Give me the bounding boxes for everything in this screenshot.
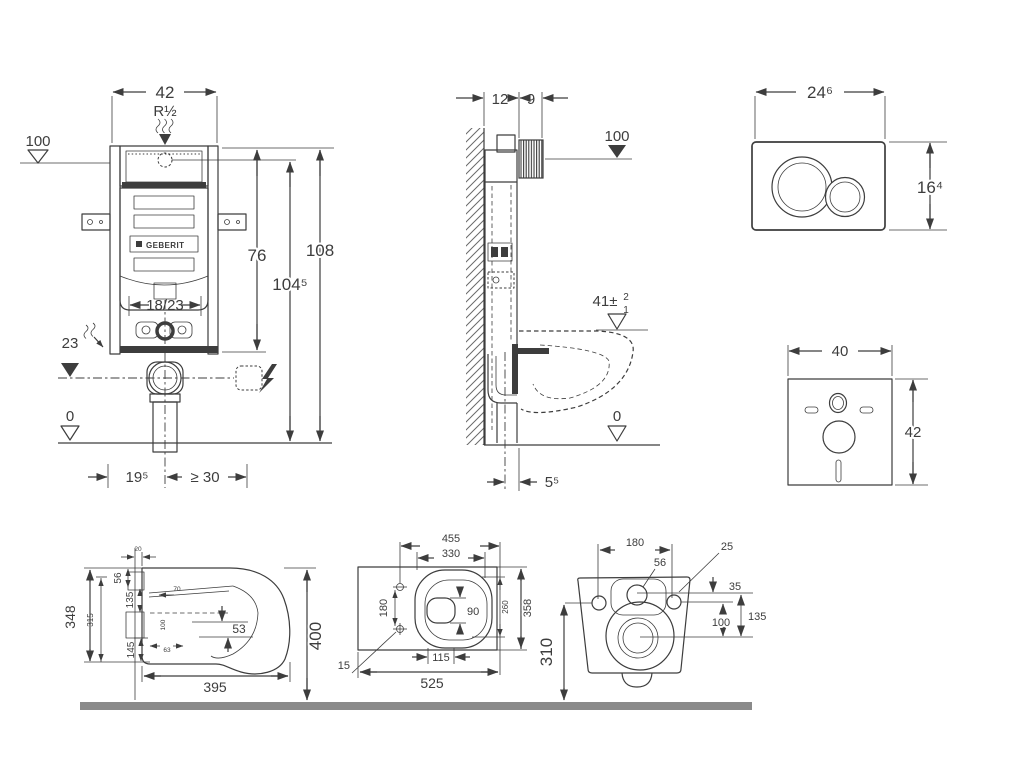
dim-100-rear-label: 100 — [712, 617, 730, 629]
dim-42-label: 42 — [905, 424, 922, 441]
dim-180-rear-label: 180 — [626, 537, 644, 549]
dim-plate-width: 24⁶ — [755, 83, 885, 139]
dim-310-label: 310 — [537, 638, 556, 666]
dim-40-label: 40 — [832, 343, 849, 360]
dim-180-top: 180 — [378, 590, 395, 626]
dim-53: 53 — [192, 606, 253, 652]
dim-15-label: 15 — [338, 660, 350, 672]
pan-height-marker: 41± 2 1 — [593, 292, 648, 330]
water-supply-icon — [156, 119, 173, 145]
dim-100-side-label: 100 — [160, 619, 167, 630]
level-0-side-label: 0 — [613, 408, 621, 425]
dim-plate-height: 16⁴ — [889, 142, 947, 230]
dim-108-label: 108 — [306, 241, 334, 260]
dim-56-rear-label: 56 — [654, 557, 666, 569]
dim-455: 455 — [401, 533, 499, 546]
dim-330: 330 — [418, 548, 484, 560]
dim-outlet-offset: 5⁵ — [487, 448, 559, 491]
dim-width-label: 42 — [156, 83, 175, 102]
dim-25-leader: 25 — [679, 541, 733, 592]
dim-395: 395 — [142, 662, 290, 695]
wall-hatch — [466, 128, 484, 445]
dim-100-rear: 100 — [712, 604, 730, 636]
level-23-label: 23 — [62, 335, 79, 352]
dim-135-rear-label: 135 — [748, 611, 766, 623]
pan-rear-shapes — [578, 577, 690, 687]
zero-level-marker-side: 0 — [484, 408, 660, 445]
level-100-label: 100 — [25, 133, 50, 150]
dim-135-side-label: 135 — [125, 591, 136, 608]
dim-mat-width: 40 — [788, 343, 892, 376]
dim-35-label: 35 — [729, 581, 741, 593]
dim-525-label: 525 — [420, 675, 444, 691]
dim-400-label: 400 — [306, 622, 325, 650]
flush-bend — [147, 300, 183, 488]
dim-358-label: 358 — [522, 599, 534, 617]
dim-thread-label: R½ — [153, 103, 177, 120]
dim-108: 108 — [306, 150, 334, 441]
view-wc-top: 455 330 180 90 — [338, 533, 534, 691]
view-frame-side: 12 9 100 — [456, 91, 660, 492]
dim-180-top-label: 180 — [378, 599, 390, 617]
supply-level-marker: 100 — [20, 133, 110, 163]
dim-395-label: 395 — [203, 679, 227, 695]
dim-55-label: 5⁵ — [545, 474, 560, 491]
dim-63-label: 63 — [163, 647, 171, 654]
level-0-label: 0 — [66, 408, 74, 425]
water-flow-icon — [84, 323, 103, 347]
view-frame-front: 42 R½ 100 GEBERIT — [20, 83, 334, 488]
dim-70-label: 70 — [173, 586, 181, 593]
view-wc-rear: 180 25 56 35 — [537, 537, 766, 700]
view-flush-plate: 24⁶ 16⁴ — [752, 83, 947, 230]
dim-90: 90 — [450, 588, 479, 633]
dim-330-label: 330 — [442, 548, 460, 560]
dim-mat-height: 42 — [895, 379, 928, 485]
dim-135-side: 135 — [125, 589, 140, 612]
dim-135-rear: 135 — [741, 595, 766, 636]
dim-104: 104⁵ — [272, 162, 307, 441]
dim-bottom-offsets: 19⁵ ≥ 30 — [88, 464, 247, 488]
dim-145: 145 — [126, 638, 148, 661]
floor-bar — [80, 702, 752, 710]
technical-drawing: 42 R½ 100 GEBERIT — [0, 0, 1024, 758]
dim-56-side: 56 — [113, 569, 128, 587]
dim-9-label: 9 — [527, 91, 535, 108]
dim-35: 35 — [713, 577, 741, 593]
dim-400: 400 — [306, 570, 325, 700]
wc-pan-dashed-outline — [517, 331, 633, 413]
dim-145-label: 145 — [126, 641, 137, 658]
dim-104-label: 104⁵ — [272, 275, 307, 294]
view-wc-side: 20 70 100 63 56 — [62, 546, 325, 700]
dim-20: 20 — [121, 546, 156, 566]
dim-348-label: 348 — [62, 605, 78, 629]
dim-56-side-label: 56 — [113, 572, 124, 584]
level-100-side-label: 100 — [604, 128, 629, 145]
mat-cutouts — [805, 394, 873, 483]
installation-drawing-page: 42 R½ 100 GEBERIT — [0, 0, 1024, 758]
flush-buttons — [772, 157, 865, 217]
brand-label: GEBERIT — [146, 241, 184, 250]
dim-20-label: 20 — [134, 546, 142, 553]
dim-260-label: 260 — [501, 600, 510, 614]
dim-min30-label: ≥ 30 — [190, 469, 219, 486]
pan-outline — [126, 568, 290, 674]
dim-53-label: 53 — [232, 622, 246, 636]
zero-level-marker: 0 — [58, 408, 332, 443]
mat-body — [788, 379, 892, 485]
view-sound-mat: 40 42 — [788, 343, 928, 485]
dim-12-label: 12 — [492, 91, 509, 108]
supply-level-marker-side: 100 — [545, 128, 632, 159]
dim-115-label: 115 — [432, 652, 450, 664]
dim-164-label: 16⁴ — [917, 178, 943, 197]
dim-76-label: 76 — [248, 246, 267, 265]
frame-side-structure — [485, 135, 543, 445]
dim-25-label: 25 — [721, 541, 733, 553]
electric-connection-icon — [236, 364, 277, 393]
dim-455-label: 455 — [442, 533, 460, 545]
dim-41-label: 41± — [593, 293, 618, 310]
dim-15-leader: 15 — [338, 632, 396, 673]
flush-bend-side — [488, 344, 518, 492]
dim-246-label: 24⁶ — [807, 83, 833, 102]
dim-41-tolplus: 2 — [623, 292, 629, 303]
dim-195-label: 19⁵ — [126, 469, 149, 486]
dim-90-label: 90 — [467, 606, 479, 618]
dim-310: 310 — [537, 605, 564, 700]
dim-315: 315 — [86, 577, 107, 662]
